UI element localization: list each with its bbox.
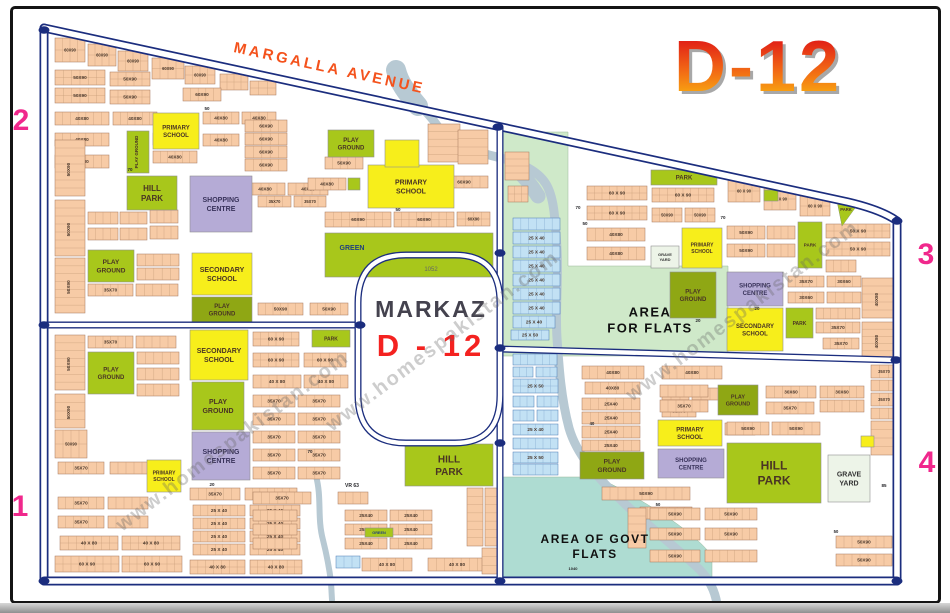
plot-size-label: 35X70 — [267, 453, 281, 458]
plot-size-label: 60 X 90 — [317, 358, 334, 363]
plot-size-label: 50 X 90 — [850, 247, 867, 252]
shopping-centre-label: CENTRE — [679, 465, 704, 471]
junction-dot — [892, 577, 903, 585]
plot-size-label: 50X90 — [123, 95, 137, 100]
street-number: 40 — [590, 421, 595, 426]
street-number: 70 — [720, 215, 726, 220]
plot-strip — [137, 352, 179, 364]
plot-size-label: 50X90 — [739, 248, 753, 253]
plot-size-label: 25X40 — [359, 541, 373, 546]
plot-size-label: 50 X 90 — [850, 229, 867, 234]
plot-strip — [428, 124, 460, 162]
markaz-line2: D - 12 — [366, 328, 496, 364]
plot-strip — [136, 284, 178, 296]
street-number: 20 — [754, 306, 760, 311]
plot-size-label: 50X90 — [123, 77, 137, 82]
junction-dot — [495, 344, 506, 352]
plot-size-label: 40X80 — [168, 155, 182, 160]
junction-dot — [39, 321, 50, 329]
plot-size-label: 50X90 — [741, 426, 755, 431]
plot-size-label: 25 X 40 — [528, 292, 545, 297]
hill-park-label: PARK — [435, 467, 463, 478]
primary-school-label: SCHOOL — [396, 188, 427, 195]
primary-school-label: PRIMARY — [162, 125, 189, 131]
plot-size-label: 50X90 — [66, 222, 71, 236]
plot-size-label: 40 X 80 — [269, 379, 286, 384]
plot-size-label: 25 X 50 — [522, 333, 539, 338]
plot-strip — [513, 410, 534, 421]
plot-size-label: 35X70 — [74, 466, 88, 471]
plot-size-label: 40 X 80 — [268, 565, 285, 570]
play-ground-label: PLAY — [604, 459, 621, 466]
plot-size-label: 35X70 — [312, 453, 326, 458]
plot-size-label: 50X90 — [789, 426, 803, 431]
area-for-flats-label-label: AREA — [629, 304, 672, 319]
plot-size-label: 40X80 — [214, 116, 228, 121]
edge-marker-3: 3 — [918, 238, 935, 271]
plot-strip — [467, 488, 483, 546]
plot-size-label: 35X70 — [783, 406, 797, 411]
secondary-school-label: SCHOOL — [204, 357, 235, 364]
play-ground-label: PLAY — [685, 289, 700, 295]
primary-school-label: SCHOOL — [153, 477, 174, 483]
plot-size-label: 35X70 — [267, 399, 281, 404]
junction-dot — [892, 217, 903, 225]
plot-size-label: 35X70 — [834, 341, 848, 346]
plot-size-label: 50X90 — [337, 161, 351, 166]
play-ground-label: GROUND — [726, 401, 750, 407]
edge-marker-2: 2 — [13, 104, 30, 137]
plot-size-label: 50X90 — [73, 75, 87, 80]
shopping-centre-label: CENTRE — [743, 291, 768, 297]
plot-size-label: 40X80 — [874, 292, 879, 306]
plot-strip — [137, 268, 179, 280]
plot-strip — [537, 396, 558, 407]
plot-strip — [108, 497, 148, 509]
street-number: 1040 — [569, 566, 579, 571]
markaz-line1: MARKAZ — [366, 296, 496, 323]
plot-size-label: 60 X 90 — [675, 193, 692, 198]
plot-strip — [513, 396, 534, 407]
plot-size-label: 25 X 40 — [211, 547, 228, 552]
plot-size-label: 60 X 90 — [79, 562, 96, 567]
plot-size-label: 40X80 — [609, 232, 623, 237]
hill-park-label: HILL — [761, 459, 788, 473]
plot-size-label: 40X80 — [75, 116, 89, 121]
plot-size-label: 50X90 — [66, 405, 71, 419]
hill-park-label: HILL — [143, 184, 161, 193]
govt-flats-label-label: AREA OF GOVT — [541, 532, 650, 546]
plot-size-label: 60X90 — [259, 163, 273, 168]
plot-size-label: 40X80 — [320, 182, 334, 187]
primary-school-label: PRIMARY — [691, 243, 715, 249]
plot-size-label: 25 X 50 — [527, 455, 544, 460]
park-label: PARK — [793, 321, 807, 327]
street-number: 70 — [575, 205, 581, 210]
plot-size-label: 50X90 — [661, 213, 674, 218]
plot-size-label: 25 X 50 — [527, 384, 544, 389]
street-number: 50 — [395, 207, 401, 212]
plot-size-label: 35X70 — [878, 397, 891, 402]
plot-size-label: 30X60 — [799, 295, 813, 300]
junction-dot — [495, 249, 506, 257]
plot-size-label: 50X90 — [739, 230, 753, 235]
plot-size-label: 35X70 — [267, 435, 281, 440]
plot-size-label: 60 X 90 — [737, 189, 752, 194]
plot-size-label: 40 X 80 — [209, 565, 226, 570]
plot-size-label: 35X70 — [104, 288, 118, 293]
plot-size-label: 40X80 — [609, 251, 623, 256]
plot-strip — [137, 368, 179, 380]
street-number: 50 — [656, 502, 661, 507]
plot-size-label: 35X70 — [878, 369, 891, 374]
plot-size-label: 40X80 — [685, 370, 699, 375]
junction-dot — [495, 577, 506, 585]
street-number: 50 — [582, 221, 588, 226]
plot-size-label: 50X90 — [274, 307, 288, 312]
plot-size-label: 60X90 — [96, 53, 109, 58]
play-ground-label: GROUND — [680, 297, 707, 303]
plot-strip — [108, 516, 148, 528]
plot-strip — [536, 367, 557, 377]
secondary-school-label: SCHOOL — [742, 331, 768, 337]
primary-school-label: SCHOOL — [691, 249, 712, 255]
plot-size-label: 50X90 — [65, 442, 78, 447]
yellow-mini — [861, 436, 874, 447]
junction-dot — [493, 123, 504, 131]
park-label: PARK — [324, 336, 338, 342]
secondary-school-label: SCHOOL — [207, 276, 238, 283]
park-triangle-label: PARK — [840, 207, 852, 212]
plot-size-label: 60X90 — [259, 137, 273, 142]
plot-size-label: 60X90 — [194, 73, 207, 78]
plot-size-label: 50X90 — [857, 540, 871, 545]
play-ground-label: GROUND — [98, 375, 125, 381]
plot-size-label: 60X90 — [195, 92, 209, 97]
plot-size-label: 50X90 — [668, 554, 682, 559]
hill-park-label: PARK — [757, 474, 790, 488]
primary-school-label: SCHOOL — [163, 133, 189, 139]
plot-size-label: 60X90 — [417, 217, 431, 222]
plot-size-label: 50X90 — [668, 532, 682, 537]
plot-size-label: 60 X 90 — [144, 562, 161, 567]
plot-size-label: 60X90 — [468, 217, 481, 222]
hill-park-label: HILL — [438, 454, 460, 465]
play-ground-label: GROUND — [97, 267, 126, 274]
plot-size-label: 60 X 90 — [268, 337, 285, 342]
plot-size-label: 25 X 40 — [528, 264, 545, 269]
plot-size-label: 35X70 — [267, 417, 281, 422]
plot-strip — [513, 367, 533, 377]
plot-size-label: 35X70 — [312, 417, 326, 422]
plot-size-label: 25 X 40 — [211, 508, 228, 513]
plot-size-label: 25X40 — [404, 513, 418, 518]
hill-park-label: PARK — [141, 194, 163, 203]
green-mini-label: GREEN — [372, 531, 386, 535]
green-strip-label: GREEN — [340, 245, 365, 252]
plot-size-label: 35X70 — [799, 279, 813, 284]
play-ground-label: PLAY — [214, 304, 229, 310]
shopping-centre-label: SHOPPING — [675, 458, 707, 464]
plot-size-label: 60 X 90 — [268, 358, 285, 363]
plot-size-label: 40 X 80 — [318, 379, 335, 384]
plot-size-label: 60X90 — [259, 124, 273, 129]
edge-marker-1: 1 — [12, 490, 29, 523]
plot-strip — [120, 228, 147, 240]
plot-size-label: 35X70 — [74, 520, 88, 525]
plot-size-label: 40 X 80 — [81, 541, 98, 546]
plot-strip — [705, 550, 757, 562]
plot-size-label: 25X40 — [604, 416, 618, 421]
street-number: 50 — [204, 106, 210, 111]
plot-size-label: 50X90 — [322, 307, 336, 312]
play-ground-label: GROUND — [202, 408, 233, 415]
play-ground-label: PLAY — [209, 399, 227, 406]
plot-size-label: 25 X 40 — [211, 521, 228, 526]
secondary-school-label: SECONDARY — [736, 324, 774, 330]
plot-size-label: 60X90 — [162, 66, 175, 71]
plot-size-label: 35X70 — [312, 399, 326, 404]
plot-size-label: 25X40 — [404, 541, 418, 546]
shopping-centre-label: SHOPPING — [739, 283, 771, 289]
shopping-centre-label: SHOPPING — [203, 449, 241, 456]
plot-size-label: 35X70 — [677, 404, 691, 409]
plot-size-label: 25 X 40 — [211, 534, 228, 539]
plot-size-label: 50X90 — [694, 213, 707, 218]
plot-size-label: 25X40 — [359, 513, 373, 518]
plot-size-label: 40 X 80 — [449, 562, 466, 567]
grave-yard-label: YARD — [839, 480, 858, 487]
shopping-centre-label: CENTRE — [207, 206, 236, 213]
grave-yard-label: GRAVE — [837, 472, 862, 479]
plot-size-label: 35X70 — [304, 199, 317, 204]
plot-size-label: 35X70 — [74, 501, 88, 506]
plot-size-label: 50X90 — [66, 162, 71, 176]
plot-size-label: 35X70 — [312, 471, 326, 476]
secondary-school-label: SECONDARY — [197, 348, 242, 355]
plot-strip — [137, 254, 179, 266]
plot-strip — [336, 556, 360, 568]
plot-size-label: 60X90 — [457, 180, 471, 185]
scan-edge — [0, 603, 950, 613]
plot-size-label: 50X90 — [66, 280, 71, 294]
plot-size-label: 30X60 — [837, 279, 851, 284]
plot-size-label: 50X90 — [668, 512, 682, 517]
primary-school-label: PRIMARY — [153, 471, 177, 477]
plot-size-label: 25 X 40 — [527, 427, 544, 432]
play-ground-label: PLAY GROUND — [134, 135, 139, 169]
plot-size-label: 25X40 — [604, 402, 618, 407]
plot-size-label: 25X40 — [604, 443, 618, 448]
street-number: 50 — [834, 529, 839, 534]
plot-size-label: 50X90 — [66, 357, 71, 371]
plot-size-label: 35X70 — [208, 492, 222, 497]
plot-size-label: 25 X 40 — [528, 306, 545, 311]
plot-size-label: 40 X 80 — [143, 541, 160, 546]
plot-size-label: 30X60 — [784, 390, 798, 395]
plot-size-label: 25X40 — [404, 527, 418, 532]
play-ground-label: GROUND — [338, 145, 365, 151]
plot-strip — [110, 462, 150, 474]
plot-size-label: 50X90 — [724, 532, 738, 537]
plot-strip — [136, 336, 176, 348]
sector-title: D-12 — [638, 26, 878, 108]
primary-school-label: PRIMARY — [395, 180, 427, 187]
junction-dot — [891, 356, 902, 364]
markaz-block-number: 1052 — [366, 267, 496, 273]
plot-size-label: 40X80 — [606, 370, 620, 375]
plot-size-label: 40X80 — [258, 187, 272, 192]
green-mini — [764, 190, 778, 201]
primary-school-label: SCHOOL — [677, 435, 703, 441]
street-number: 20 — [695, 318, 701, 323]
junction-dot — [495, 439, 506, 447]
school-annex — [385, 140, 419, 167]
plot-size-label: 40X80 — [874, 334, 879, 348]
plot-size-label: 50X90 — [639, 491, 653, 496]
play-ground-label: GROUND — [598, 467, 627, 474]
play-ground-label: PLAY — [103, 367, 118, 373]
play-ground-label: GROUND — [209, 311, 236, 317]
plot-size-label: 25 X 40 — [526, 320, 543, 325]
shopping-centre-label: CENTRE — [207, 458, 236, 465]
street-number: VR 63 — [345, 483, 359, 489]
plot-size-label: 40 X 80 — [379, 562, 396, 567]
plot-size-label: 50X90 — [857, 558, 871, 563]
plot-size-label: 35X70 — [831, 325, 845, 330]
plot-size-label: 35X70 — [267, 471, 281, 476]
street-number: 85 — [881, 483, 887, 488]
markaz-label: MARKAZ D - 12 — [366, 296, 496, 364]
play-ground-label: PLAY — [343, 138, 358, 144]
area-for-flats-label-label: FOR FLATS — [607, 321, 692, 336]
play-ground-label: PLAY — [731, 394, 745, 400]
plot-size-label: 60X90 — [259, 150, 273, 155]
plot-size-label: 60X90 — [127, 59, 140, 64]
plot-size-label: 50X90 — [73, 93, 87, 98]
plot-size-label: 25X40 — [604, 430, 618, 435]
green-mini — [348, 178, 360, 190]
plot-size-label: 35X70 — [269, 199, 282, 204]
junction-dot — [355, 321, 366, 329]
plot-size-label: 35X70 — [104, 340, 118, 345]
plot-size-label: 60X90 — [64, 48, 77, 53]
govt-flats-label-label: FLATS — [572, 547, 617, 561]
street-number: 20 — [209, 482, 215, 487]
junction-dot — [39, 26, 50, 34]
junction-dot — [39, 577, 50, 585]
street-number: 70 — [307, 449, 313, 454]
plot-size-label: 25 X 40 — [528, 236, 545, 241]
plot-strip — [120, 212, 147, 224]
play-ground-label: PLAY — [103, 259, 120, 266]
park-label: PARK — [804, 243, 817, 248]
plot-strip — [137, 384, 179, 396]
plot-size-label: 35X70 — [312, 435, 326, 440]
plot-size-label: 40X80 — [214, 138, 228, 143]
plot-size-label: 60X90 — [351, 217, 365, 222]
park-label: PARK — [676, 176, 693, 182]
edge-marker-4: 4 — [919, 446, 936, 479]
plot-size-label: 25 X 40 — [528, 278, 545, 283]
plot-strip — [537, 410, 558, 421]
plot-size-label: 60 X 90 — [609, 191, 626, 196]
plot-size-label: 60 X 90 — [609, 211, 626, 216]
shopping-centre-label: SHOPPING — [203, 197, 241, 204]
street-number: 70 — [127, 167, 133, 172]
plot-size-label: 40X80 — [606, 386, 620, 391]
plot-size-label: 30X60 — [835, 390, 849, 395]
plot-size-label: 50X90 — [724, 512, 738, 517]
grave-yard-label: YARD — [660, 257, 671, 262]
d12-sector-map: 60X9060X9060X9060X9060X9050X9050X9060X90… — [0, 0, 950, 613]
plot-size-label: 25 X 40 — [528, 250, 545, 255]
secondary-school-label: SECONDARY — [200, 267, 245, 274]
plot-size-label: 35X70 — [275, 496, 289, 501]
primary-school-label: PRIMARY — [676, 427, 703, 433]
plot-size-label: 40X80 — [128, 116, 142, 121]
plot-size-label: 60 X 90 — [808, 204, 823, 209]
